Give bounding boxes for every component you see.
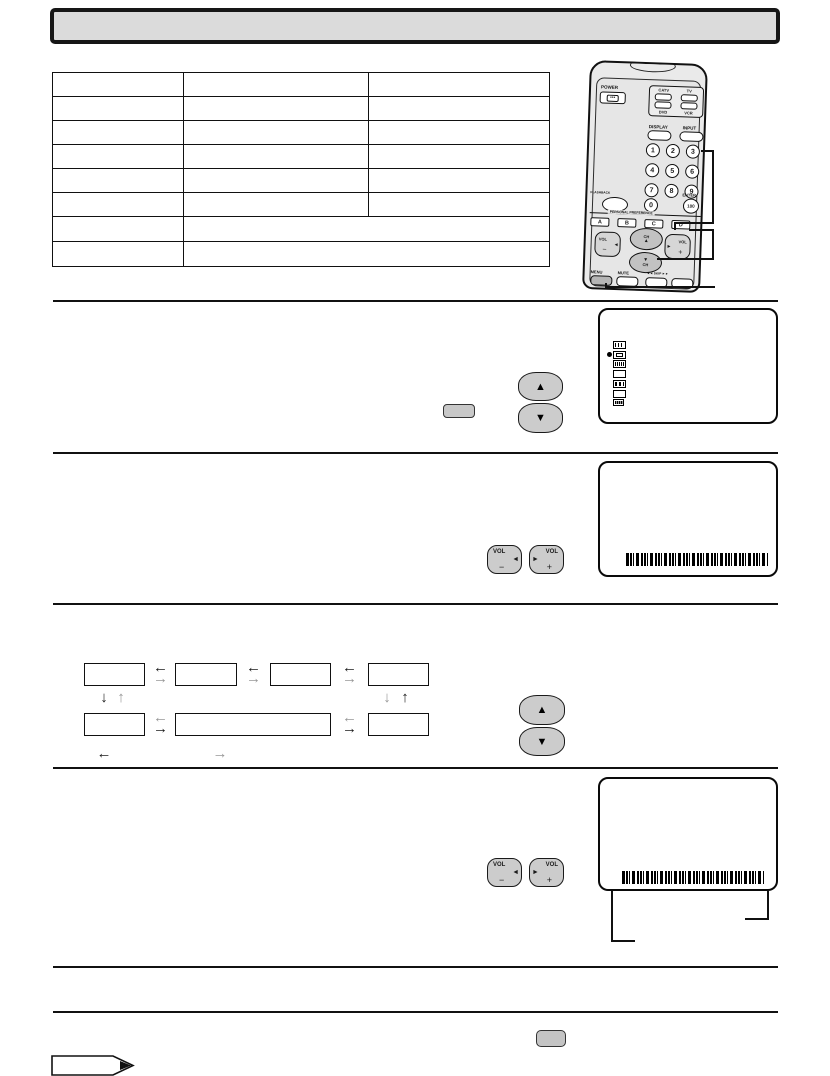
manual-page: POWER ••• CATVTVDVDVCR DISPLAY INPUT 123… [0, 0, 830, 1076]
table-row [53, 192, 549, 216]
tv-screen-slider-2 [598, 777, 778, 891]
callout-bracket-1-top [701, 150, 714, 152]
small-button-illustration [536, 1030, 566, 1047]
up-triangle-icon: ▲ [644, 238, 649, 243]
vol-minus-button-illustration: VOL − ◄ [487, 545, 522, 574]
up-triangle-icon: ▲ [535, 381, 546, 393]
table-cell [368, 121, 549, 144]
flow-arrow-right-icon: → [147, 671, 174, 686]
table-cell [53, 169, 183, 192]
menu-item-icon-2 [613, 351, 626, 359]
menu-label: MENU [591, 269, 603, 274]
table-cell [183, 169, 368, 192]
flow-arrow-right-icon: → [238, 671, 269, 686]
left-triangle-icon: ◄ [614, 242, 619, 248]
rule-1 [53, 300, 778, 302]
vol-label: VOL [599, 236, 607, 241]
down-triangle-icon: ▼ [537, 736, 548, 748]
table-row [53, 144, 549, 168]
rule-5 [53, 966, 778, 968]
table-cell [183, 217, 549, 241]
table-cell [368, 193, 549, 216]
minus-sign: − [499, 563, 504, 572]
callout-bracket-1-vertical [712, 150, 714, 224]
flow-arrow-down-icon: ↓ [379, 690, 395, 705]
preference-button-b: B [617, 218, 636, 228]
slider-bar-illustration [626, 553, 768, 566]
remote-vol-plus-button: ► VOL + [664, 234, 691, 260]
vol-plus-button-illustration: ► VOL + [529, 545, 564, 574]
flow-box-3 [270, 663, 331, 686]
table-cell [183, 242, 549, 266]
ch-up-button-illustration: ▲ [518, 372, 563, 401]
tv-screen-menu [598, 308, 778, 424]
minus-sign: − [602, 247, 606, 254]
menu-item-icon-4 [613, 370, 626, 378]
table-cell [53, 73, 183, 96]
table-cell [53, 193, 183, 216]
callout-bracket-1-bottom [674, 222, 714, 224]
flow-arrow-right-icon: → [332, 671, 367, 686]
legend-black-arrow-icon: ← [92, 746, 116, 761]
slider-callout-right-vertical [767, 891, 769, 920]
table-cell [53, 121, 183, 144]
table-cell [368, 73, 549, 96]
table-cell [53, 145, 183, 168]
vol-label: VOL [678, 239, 686, 244]
callout-bracket-2-top [689, 229, 714, 231]
left-triangle-icon: ◄ [512, 556, 519, 563]
table-cell [368, 169, 549, 192]
mute-label: MUTE [618, 270, 630, 275]
flow-box-2 [175, 663, 237, 686]
skip-label: ◄◄ SKIP ►► [647, 271, 669, 276]
table-cell [53, 242, 183, 266]
pointer-flag-shape [50, 1054, 140, 1076]
flow-box-4 [368, 663, 429, 686]
plus-sign: + [678, 249, 682, 256]
flow-box-5 [84, 713, 145, 736]
slider-bar-illustration [622, 871, 764, 884]
table-row [53, 241, 549, 266]
flow-arrow-down-icon: ↓ [96, 690, 112, 705]
vol-plus-button-illustration: ► VOL + [529, 858, 564, 887]
plus-sign: + [547, 563, 552, 572]
preference-button-a: A [590, 217, 609, 227]
up-triangle-icon: ▲ [537, 704, 548, 716]
slider-callout-right-horizontal [745, 918, 769, 920]
down-triangle-icon: ▼ [535, 412, 546, 424]
plus-sign: + [547, 876, 552, 885]
menu-item-icon-6 [613, 390, 626, 398]
flow-arrow-right-icon: → [147, 721, 174, 736]
ch-up-button-illustration: ▲ [519, 695, 565, 725]
table-cell [183, 193, 368, 216]
rule-2 [53, 452, 778, 454]
table-row [53, 168, 549, 192]
table-cell [368, 97, 549, 120]
minus-sign: − [499, 876, 504, 885]
flow-arrow-up-icon: ↑ [397, 690, 413, 705]
right-triangle-icon: ► [532, 556, 539, 563]
flow-arrow-up-icon: ↑ [113, 690, 129, 705]
callout-bracket-2-vertical [712, 229, 714, 260]
flow-arrow-right-icon: → [332, 721, 367, 736]
ch-label: CH [642, 263, 648, 267]
table-row [53, 73, 549, 96]
ch-down-button-illustration: ▼ [518, 403, 563, 433]
menu-item-icon-5 [613, 380, 626, 388]
table-cell [53, 217, 183, 241]
menu-callout-line [605, 286, 715, 288]
slider-callout-left-vertical [611, 891, 613, 942]
menu-cursor-dot [607, 352, 612, 357]
menu-item-icon-7 [613, 399, 624, 406]
menu-button [590, 275, 612, 286]
ch-down-button-illustration: ▼ [519, 727, 565, 756]
callout-bracket-1-stub [674, 222, 676, 230]
menu-item-icon-1 [613, 341, 626, 349]
callout-bracket-2-bottom [657, 258, 714, 260]
vol-minus-button-illustration: VOL − ◄ [487, 858, 522, 887]
remote-vol-minus-button: VOL − ◄ [594, 231, 621, 257]
spec-table [52, 72, 550, 267]
flow-box-7 [368, 713, 429, 736]
slider-callout-left-horizontal [611, 940, 635, 942]
table-row [53, 120, 549, 144]
right-triangle-icon: ► [666, 244, 671, 250]
table-row [53, 96, 549, 120]
menu-button-illustration [443, 404, 475, 418]
rule-4 [53, 767, 778, 769]
right-triangle-icon: ► [532, 869, 539, 876]
table-cell [183, 145, 368, 168]
table-cell [183, 73, 368, 96]
menu-icon-column [600, 310, 780, 426]
vol-label: VOL [546, 862, 558, 868]
menu-item-icon-3 [613, 360, 626, 368]
legend-gray-arrow-icon: → [208, 746, 232, 761]
title-banner [50, 8, 780, 44]
flow-box-1 [84, 663, 145, 686]
vol-label: VOL [493, 862, 505, 868]
left-triangle-icon: ◄ [512, 869, 519, 876]
table-cell [183, 97, 368, 120]
rule-3 [53, 603, 778, 605]
table-cell [53, 97, 183, 120]
table-cell [368, 145, 549, 168]
tv-screen-slider-1 [598, 461, 778, 577]
vol-label: VOL [546, 549, 558, 555]
flow-box-6 [175, 713, 331, 736]
table-cell [183, 121, 368, 144]
table-row [53, 216, 549, 241]
rule-6 [53, 1011, 778, 1013]
vol-label: VOL [493, 549, 505, 555]
